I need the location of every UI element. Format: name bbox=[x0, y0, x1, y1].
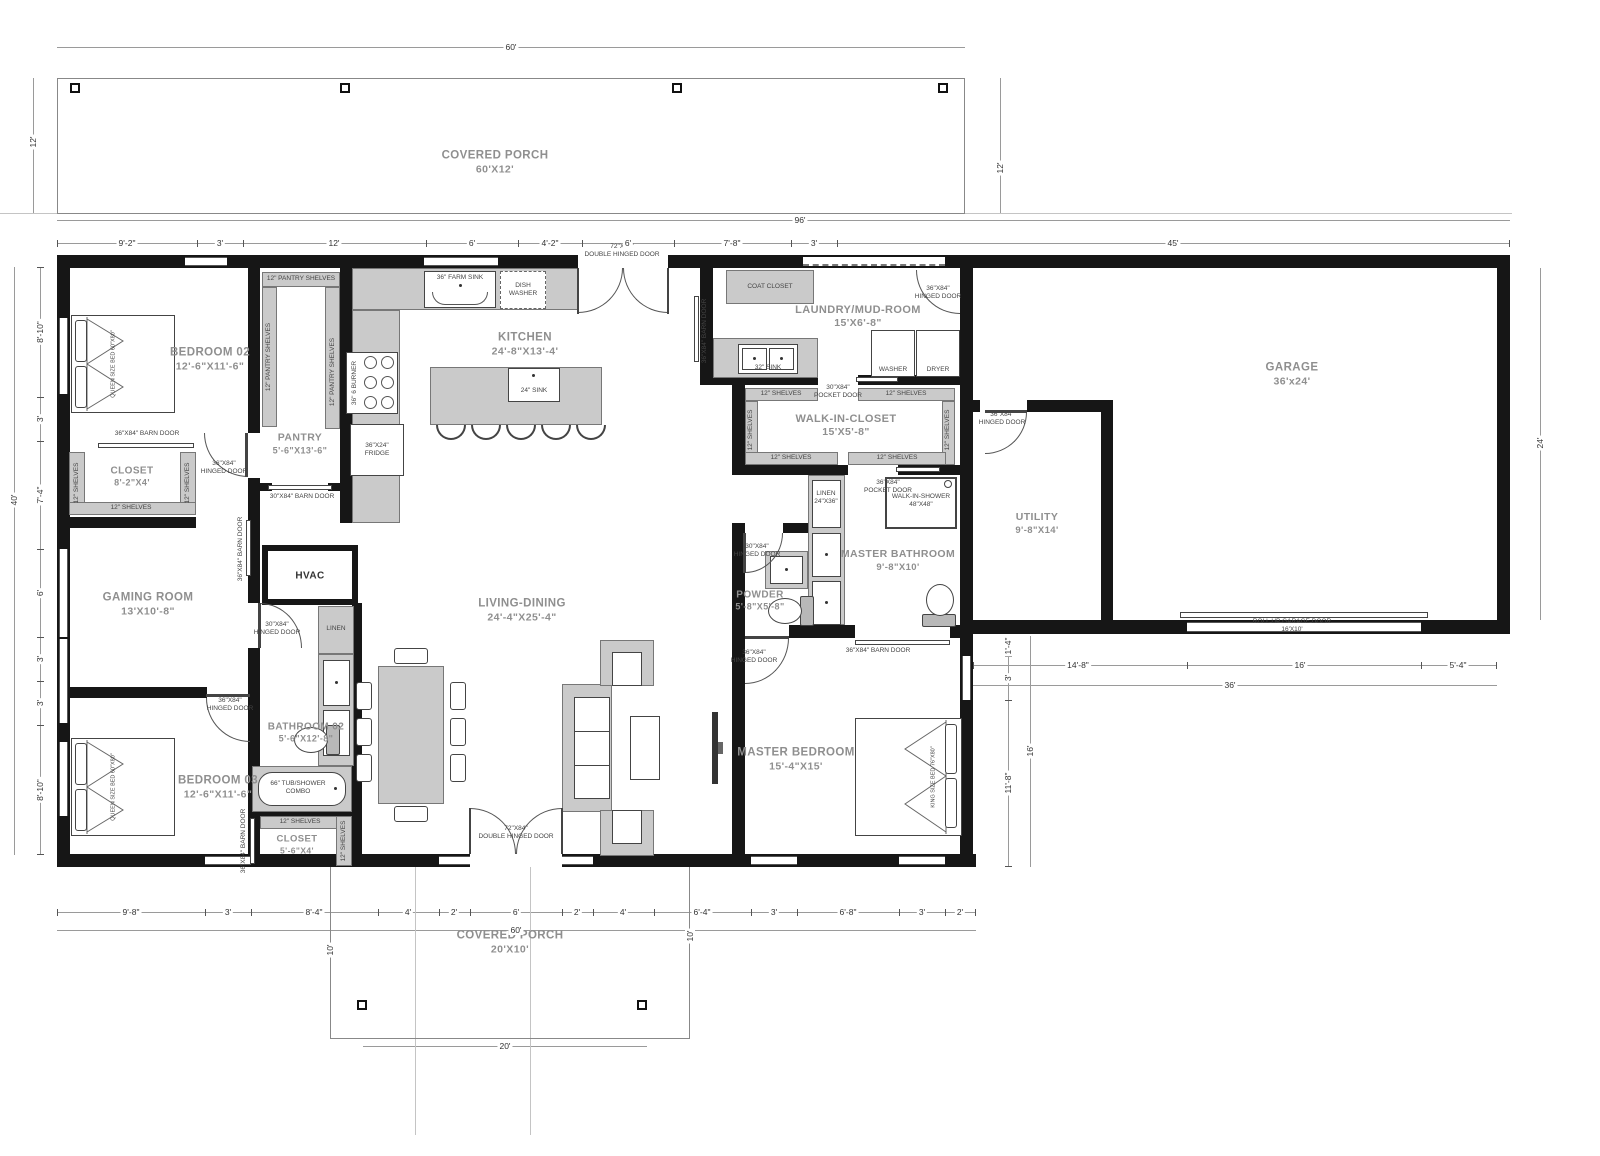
dim-label: 60' bbox=[503, 42, 518, 52]
burner-icon bbox=[364, 396, 377, 409]
room-size: 13'X10'-8" bbox=[103, 606, 194, 620]
coat-closet-label: COAT CLOSET bbox=[747, 283, 792, 291]
toilet-tank bbox=[800, 596, 814, 626]
dim-tick bbox=[791, 240, 792, 247]
wall bbox=[57, 255, 1510, 268]
dining-table bbox=[378, 666, 444, 804]
faucet-dot bbox=[825, 553, 828, 556]
room-label-garage: GARAGE36'x24' bbox=[1266, 361, 1319, 390]
dim-line bbox=[1000, 78, 1001, 213]
room-name: GARAGE bbox=[1266, 361, 1319, 376]
dim-label: 3' bbox=[769, 907, 779, 917]
room-name: GAMING ROOM bbox=[103, 591, 194, 606]
room-name: CLOSET bbox=[111, 465, 154, 478]
linen-size-text: 24"X36" bbox=[814, 498, 837, 506]
dim-label: 60' bbox=[508, 925, 523, 935]
barn-door-panel bbox=[268, 485, 332, 490]
dim-tick bbox=[37, 725, 44, 726]
burner-icon bbox=[364, 356, 377, 369]
dim-label: 6' bbox=[623, 238, 633, 248]
range-label: 36" 6 BURNER bbox=[351, 361, 359, 405]
room-name: BEDROOM 02 bbox=[170, 346, 250, 361]
dim-tick bbox=[57, 909, 58, 916]
window bbox=[185, 257, 227, 266]
dim-label: 3' bbox=[809, 238, 819, 248]
porch-post bbox=[672, 83, 682, 93]
door-type: POCKET DOOR bbox=[864, 487, 912, 495]
dim-tick bbox=[1421, 662, 1422, 669]
barn-door-panel bbox=[855, 640, 950, 645]
porch-post bbox=[357, 1000, 367, 1010]
dim-label: 4' bbox=[403, 907, 413, 917]
sofa-cushion-line bbox=[574, 731, 610, 732]
dim-label: 3' bbox=[223, 907, 233, 917]
door-leaf bbox=[745, 636, 789, 639]
door-type: DOUBLE HINGED DOOR bbox=[478, 833, 553, 841]
room-label-bathroom-02: BATHROOM 025'-6"X12'-8" bbox=[268, 721, 344, 746]
dim-label: 2' bbox=[449, 907, 459, 917]
door-type: HINGED DOOR bbox=[201, 468, 248, 476]
linen-label: LINEN bbox=[326, 625, 345, 633]
faucet-dot bbox=[532, 374, 535, 377]
pocket-door-panel bbox=[856, 377, 898, 382]
tv-mount bbox=[718, 742, 723, 754]
pantry-shelves-label: 12" PANTRY SHELVES bbox=[267, 275, 335, 283]
dim-tick bbox=[751, 909, 752, 916]
window bbox=[59, 318, 68, 394]
shelves-label: 12" SHELVES bbox=[340, 821, 348, 862]
room-label-kitchen: KITCHEN24'-8"X13'-4' bbox=[492, 331, 559, 360]
burner-icon bbox=[364, 376, 377, 389]
room-label-bedroom-03: BEDROOM 0312'-6"X11'-6" bbox=[178, 774, 258, 803]
wall bbox=[732, 465, 848, 475]
window bbox=[424, 257, 498, 266]
shelves-label: 12" SHELVES bbox=[761, 390, 802, 398]
room-name: BEDROOM 03 bbox=[178, 774, 258, 789]
dim-line bbox=[973, 665, 1497, 666]
dining-chair bbox=[394, 806, 428, 822]
window bbox=[59, 742, 68, 816]
king-bed-label: KING SIZE BED 76"X80" bbox=[931, 746, 938, 807]
dim-label: 7'-8" bbox=[722, 238, 743, 248]
bar-stool bbox=[506, 425, 536, 440]
door-label-bedroom03: 36"X84"HINGED DOOR bbox=[207, 697, 254, 713]
rollup-text: ROLL UP GARAGE DOOR bbox=[1253, 618, 1331, 626]
dining-chair bbox=[450, 754, 466, 782]
barn-door-panel bbox=[250, 818, 255, 864]
dishwasher-label: DISH WASHER bbox=[505, 282, 541, 298]
door-label-masterbath-pocket: 36"X84"POCKET DOOR bbox=[864, 479, 912, 495]
dining-chair bbox=[394, 648, 428, 664]
shower-size-text: 48"X48" bbox=[892, 501, 950, 509]
wall bbox=[789, 625, 855, 638]
dim-tick bbox=[1005, 700, 1012, 701]
dim-label: 10' bbox=[685, 928, 695, 943]
dim-tick bbox=[57, 240, 58, 247]
dim-tick bbox=[518, 240, 519, 247]
dim-tick bbox=[674, 240, 675, 247]
dryer-label: DRYER bbox=[927, 366, 950, 374]
room-label-powder: POWDER5'-8"X5'-8" bbox=[735, 589, 784, 614]
shelves-label: 12" SHELVES bbox=[771, 454, 812, 462]
room-size: 24'-4"X25'-4" bbox=[478, 612, 566, 626]
dim-line bbox=[1008, 636, 1009, 867]
dim-tick bbox=[197, 240, 198, 247]
door-type: HINGED DOOR bbox=[734, 551, 781, 559]
porch-post bbox=[340, 83, 350, 93]
bar-stool bbox=[576, 425, 606, 440]
wall bbox=[57, 687, 207, 698]
barn-door-panel bbox=[98, 443, 194, 448]
room-size: 24'-8"X13'-4' bbox=[492, 346, 559, 360]
pillow bbox=[75, 366, 87, 408]
dim-tick bbox=[426, 240, 427, 247]
dim-label: 16' bbox=[1292, 660, 1307, 670]
dim-label: 16' bbox=[1025, 743, 1035, 758]
shelves-label: 12" SHELVES bbox=[73, 463, 81, 504]
faucet-dot bbox=[825, 601, 828, 604]
armchair-seat bbox=[612, 810, 642, 844]
window bbox=[899, 856, 945, 865]
barn-door-panel bbox=[694, 296, 699, 362]
door-type: HINGED DOOR bbox=[915, 293, 962, 301]
porch-post bbox=[70, 83, 80, 93]
door-size: 36"X84" bbox=[979, 411, 1026, 419]
door-size: 36"X84" bbox=[201, 460, 248, 468]
dim-tick bbox=[37, 549, 44, 550]
window-dashed bbox=[803, 257, 945, 266]
faucet-dot bbox=[459, 284, 462, 287]
door-label-master: 36"X84"HINGED DOOR bbox=[731, 649, 778, 665]
dim-label: 7'-4" bbox=[35, 485, 45, 506]
room-name: CLOSET bbox=[277, 833, 318, 845]
door-type: HINGED DOOR bbox=[207, 705, 254, 713]
dim-tick bbox=[37, 267, 44, 268]
room-label-bedroom-02: BEDROOM 0212'-6"X11'-6" bbox=[170, 346, 250, 375]
room-label-wic: WALK-IN-CLOSET15'X5'-8" bbox=[796, 412, 897, 440]
dim-label: 6'-4" bbox=[692, 907, 713, 917]
room-label-gaming: GAMING ROOM13'X10'-8" bbox=[103, 591, 194, 620]
dim-tick bbox=[1187, 662, 1188, 669]
dim-tick bbox=[945, 909, 946, 916]
window bbox=[59, 639, 68, 723]
room-label-utility: UTILITY9'-8"X14' bbox=[1015, 511, 1058, 537]
bar-stool bbox=[471, 425, 501, 440]
pantry-shelves-label: 12" PANTRY SHELVES bbox=[329, 338, 337, 406]
room-size: 36'x24' bbox=[1266, 376, 1319, 390]
wall bbox=[1497, 255, 1510, 633]
dim-tick bbox=[37, 681, 44, 682]
dim-label: 6'-8" bbox=[838, 907, 859, 917]
room-name: PANTRY bbox=[273, 431, 328, 445]
shelves-label: 12" SHELVES bbox=[184, 463, 192, 504]
dim-label: 3' bbox=[35, 414, 45, 424]
washer-label: WASHER bbox=[879, 366, 907, 374]
door-size: 36"X84" bbox=[864, 479, 912, 487]
faucet-dot bbox=[780, 357, 783, 360]
dim-label: 5'-4" bbox=[1448, 660, 1469, 670]
dim-tick bbox=[251, 909, 252, 916]
door-size: 72"X84" bbox=[478, 825, 553, 833]
shelves-label: 12" SHELVES bbox=[877, 454, 918, 462]
shelves-label: 12" SHELVES bbox=[747, 410, 755, 451]
pantry-shelves-label: 12" PANTRY SHELVES bbox=[265, 323, 273, 391]
linen-label-master: LINEN24"X36" bbox=[814, 490, 837, 506]
farm-sink-curve bbox=[432, 292, 488, 305]
shower-label: WALK-IN-SHOWER48"X48" bbox=[892, 493, 950, 509]
sofa-cushion-line bbox=[574, 765, 610, 766]
door-label-master-barn: 36"X84" BARN DOOR bbox=[846, 647, 911, 655]
dim-label: 10' bbox=[325, 942, 335, 957]
window bbox=[751, 856, 797, 865]
room-size: 9'-8"X10' bbox=[841, 562, 955, 574]
dim-tick bbox=[899, 909, 900, 916]
tub-faucet-dot bbox=[334, 787, 337, 790]
room-size: 15'-4"X15' bbox=[737, 761, 854, 775]
room-size: 20'X10' bbox=[457, 944, 564, 958]
linen-text: LINEN bbox=[814, 490, 837, 498]
dim-label: 3' bbox=[1003, 673, 1013, 683]
dim-tick bbox=[243, 240, 244, 247]
dim-tick bbox=[1509, 240, 1510, 247]
queen-bed-label: QUEEN SIZE BED 60"X80" bbox=[111, 330, 118, 398]
room-size: 5'-6"X13'-6" bbox=[273, 445, 328, 457]
door-label-closet03-barn: 36"X84" BARN DOOR bbox=[240, 809, 248, 874]
farm-sink-label: 36" FARM SINK bbox=[437, 274, 483, 282]
dim-tick bbox=[37, 397, 44, 398]
pillow bbox=[75, 743, 87, 785]
room-label-laundry: LAUNDRY/MUD-ROOM15'X6'-8" bbox=[795, 303, 921, 331]
dim-label: 6' bbox=[35, 588, 45, 598]
dim-label: 8'-10" bbox=[35, 319, 45, 345]
wall bbox=[732, 523, 745, 533]
door-leaf bbox=[667, 268, 669, 314]
door-label-bottom-entry: 72"X84"DOUBLE HINGED DOOR bbox=[478, 825, 553, 841]
burner-icon bbox=[381, 376, 394, 389]
rollup-size-text: 16'X10' bbox=[1253, 626, 1331, 634]
dim-label: 20' bbox=[497, 1041, 512, 1051]
dim-label: 11'-8" bbox=[1003, 770, 1013, 795]
room-size: 15'X6'-8" bbox=[795, 317, 921, 331]
room-name: COVERED PORCH bbox=[442, 149, 549, 164]
dim-label: 6' bbox=[511, 907, 521, 917]
room-size: 5'-6"X12'-8" bbox=[268, 734, 344, 746]
door-size: 30"X84" bbox=[734, 543, 781, 551]
dim-label: 1'-4" bbox=[1003, 636, 1013, 657]
room-label-closet-03: CLOSET5'-6"X4' bbox=[277, 833, 318, 856]
room-label-hvac: HVAC bbox=[295, 570, 324, 583]
room-size: 5'-8"X5'-8" bbox=[735, 602, 784, 614]
dim-label: 9'-8" bbox=[121, 907, 142, 917]
door-label-gaming: 30"X84"HINGED DOOR bbox=[254, 621, 301, 637]
dim-tick bbox=[973, 662, 974, 669]
door-leaf bbox=[469, 808, 471, 854]
pocket-door-panel bbox=[896, 467, 940, 472]
room-name: MASTER BATHROOM bbox=[841, 548, 955, 562]
dim-label: 4'-2" bbox=[540, 238, 561, 248]
pillow bbox=[945, 724, 957, 774]
dim-label: 9'-2" bbox=[117, 238, 138, 248]
window bbox=[562, 856, 593, 865]
faucet-dot bbox=[785, 568, 788, 571]
window bbox=[962, 656, 971, 700]
dim-line bbox=[57, 243, 1510, 244]
room-size: 9'-8"X14' bbox=[1015, 525, 1058, 537]
shelves-label: 12" SHELVES bbox=[886, 390, 927, 398]
pillow bbox=[75, 789, 87, 831]
door-leaf bbox=[577, 268, 579, 314]
pillow bbox=[945, 778, 957, 828]
room-name: UTILITY bbox=[1015, 511, 1058, 525]
window bbox=[439, 856, 470, 865]
wall bbox=[57, 517, 196, 528]
barn-door-panel bbox=[246, 520, 251, 576]
room-label-covered-porch-top: COVERED PORCH60'X12' bbox=[442, 149, 549, 178]
burner-icon bbox=[381, 356, 394, 369]
room-label-master-bedroom: MASTER BEDROOM15'-4"X15' bbox=[737, 746, 854, 775]
room-size: 12'-6"X11'-6" bbox=[178, 789, 258, 803]
floor-plan: COVERED PORCH60'X12' BEDROOM 0212'-6"X11… bbox=[0, 0, 1600, 1156]
dim-label: 12' bbox=[28, 134, 38, 149]
queen-bed-label: QUEEN SIZE BED 60"X80" bbox=[111, 753, 118, 821]
dining-chair bbox=[450, 718, 466, 746]
burner-icon bbox=[381, 396, 394, 409]
dim-tick bbox=[1005, 866, 1012, 867]
shelves-label: 12" SHELVES bbox=[111, 504, 152, 512]
window bbox=[59, 549, 68, 637]
door-label-powder: 30"X84"HINGED DOOR bbox=[734, 543, 781, 559]
dim-label: 3' bbox=[917, 907, 927, 917]
faucet-dot bbox=[753, 357, 756, 360]
door-swing-arc bbox=[578, 268, 623, 313]
door-label-bedroom02: 36"X84"HINGED DOOR bbox=[201, 460, 248, 476]
door-size: 36"X84" bbox=[207, 697, 254, 705]
door-label-laundry-barn: 36"X84" BARN DOOR bbox=[701, 299, 709, 364]
dim-label: 8'-10" bbox=[35, 777, 45, 803]
dim-label: 2' bbox=[955, 907, 965, 917]
wall bbox=[1101, 400, 1113, 634]
door-label-closet02-barn: 36"X84" BARN DOOR bbox=[115, 430, 180, 438]
dining-chair bbox=[356, 718, 372, 746]
dining-chair bbox=[356, 754, 372, 782]
shelves-label: 12" SHELVES bbox=[944, 410, 952, 451]
toilet-icon bbox=[926, 584, 954, 616]
dim-tick bbox=[837, 240, 838, 247]
dim-label: 12' bbox=[326, 238, 341, 248]
dim-label: 8'-4" bbox=[304, 907, 325, 917]
room-name: POWDER bbox=[735, 589, 784, 602]
laundry-sink-label: 32" SINK bbox=[755, 364, 782, 372]
room-name: MASTER BEDROOM bbox=[737, 746, 854, 761]
door-type: HINGED DOOR bbox=[254, 629, 301, 637]
dim-label: 2' bbox=[572, 907, 582, 917]
dim-label: 12' bbox=[995, 160, 1005, 175]
dim-tick bbox=[975, 909, 976, 916]
shower-drain-icon bbox=[944, 480, 952, 488]
door-label-utility: 36"X84"HINGED DOOR bbox=[979, 411, 1026, 427]
room-size: 60'X12' bbox=[442, 164, 549, 178]
dim-label: 6' bbox=[467, 238, 477, 248]
dim-label: 3' bbox=[35, 654, 45, 664]
room-label-living: LIVING-DINING24'-4"X25'-4" bbox=[478, 597, 566, 626]
door-type: POCKET DOOR bbox=[814, 392, 862, 400]
door-leaf bbox=[561, 808, 563, 854]
armchair-seat bbox=[612, 652, 642, 686]
dim-line bbox=[40, 267, 41, 855]
dim-line bbox=[57, 220, 1510, 221]
bar-stool bbox=[436, 425, 466, 440]
door-type: DOUBLE HINGED DOOR bbox=[584, 251, 659, 259]
door-size: 30"X84" bbox=[814, 384, 862, 392]
door-type: HINGED DOOR bbox=[731, 657, 778, 665]
bar-stool bbox=[541, 425, 571, 440]
dim-label: 14'-8" bbox=[1065, 660, 1091, 670]
dim-label: 36' bbox=[1222, 680, 1237, 690]
door-size: 36"X84" bbox=[731, 649, 778, 657]
dim-tick bbox=[37, 637, 44, 638]
fridge-label: 36"X24" FRIDGE bbox=[355, 442, 399, 458]
room-size: 5'-6"X4' bbox=[277, 846, 318, 857]
shelves-label: 12" SHELVES bbox=[280, 818, 321, 826]
room-name: BATHROOM 02 bbox=[268, 721, 344, 734]
door-label-pantry-barn: 30"X84" BARN DOOR bbox=[270, 493, 335, 501]
room-size: 8'-2"X4' bbox=[111, 478, 154, 490]
dim-label: 3' bbox=[35, 698, 45, 708]
door-size: 30"X84" bbox=[254, 621, 301, 629]
door-label-wic-pocket: 30"X84"POCKET DOOR bbox=[814, 384, 862, 400]
kitchen-counter bbox=[352, 310, 400, 523]
dim-tick bbox=[582, 240, 583, 247]
dim-line bbox=[14, 267, 15, 855]
island-sink-label: 24" SINK bbox=[521, 387, 548, 395]
porch-post bbox=[938, 83, 948, 93]
dim-label: 40' bbox=[9, 492, 19, 507]
room-size: 15'X5'-8" bbox=[796, 426, 897, 440]
rollup-label: ROLL UP GARAGE DOOR16'X10' bbox=[1253, 618, 1331, 634]
room-name: HVAC bbox=[295, 570, 324, 583]
dining-chair bbox=[356, 682, 372, 710]
faucet-dot bbox=[335, 681, 338, 684]
room-size: 12'-6"X11'-6" bbox=[170, 361, 250, 375]
room-name: KITCHEN bbox=[492, 331, 559, 346]
porch-post bbox=[637, 1000, 647, 1010]
room-label-master-bath: MASTER BATHROOM9'-8"X10' bbox=[841, 548, 955, 574]
dim-label: 4' bbox=[618, 907, 628, 917]
dim-tick bbox=[37, 441, 44, 442]
dim-tick bbox=[797, 909, 798, 916]
dim-label: 3' bbox=[215, 238, 225, 248]
entry-opening bbox=[470, 854, 562, 867]
door-size: 36"X84" bbox=[915, 285, 962, 293]
door-type: HINGED DOOR bbox=[979, 419, 1026, 427]
coffee-table bbox=[630, 716, 660, 780]
dim-tick bbox=[205, 909, 206, 916]
dim-label: 96' bbox=[792, 215, 807, 225]
door-label-hall-barn: 36"X84" BARN DOOR bbox=[237, 517, 245, 582]
covered-porch-top-outline bbox=[57, 78, 965, 214]
room-label-closet-02: CLOSET8'-2"X4' bbox=[111, 465, 154, 490]
tub-label: 66" TUB/SHOWER COMBO bbox=[262, 780, 334, 796]
sofa-seat bbox=[574, 697, 610, 799]
door-swing-arc bbox=[623, 268, 668, 313]
wall bbox=[732, 385, 745, 475]
pillow bbox=[75, 320, 87, 362]
dim-label: 24' bbox=[1535, 435, 1545, 450]
dining-chair bbox=[450, 682, 466, 710]
dim-tick bbox=[37, 854, 44, 855]
door-label-laundry-garage: 36"X84"HINGED DOOR bbox=[915, 285, 962, 301]
room-name: WALK-IN-CLOSET bbox=[796, 412, 897, 426]
